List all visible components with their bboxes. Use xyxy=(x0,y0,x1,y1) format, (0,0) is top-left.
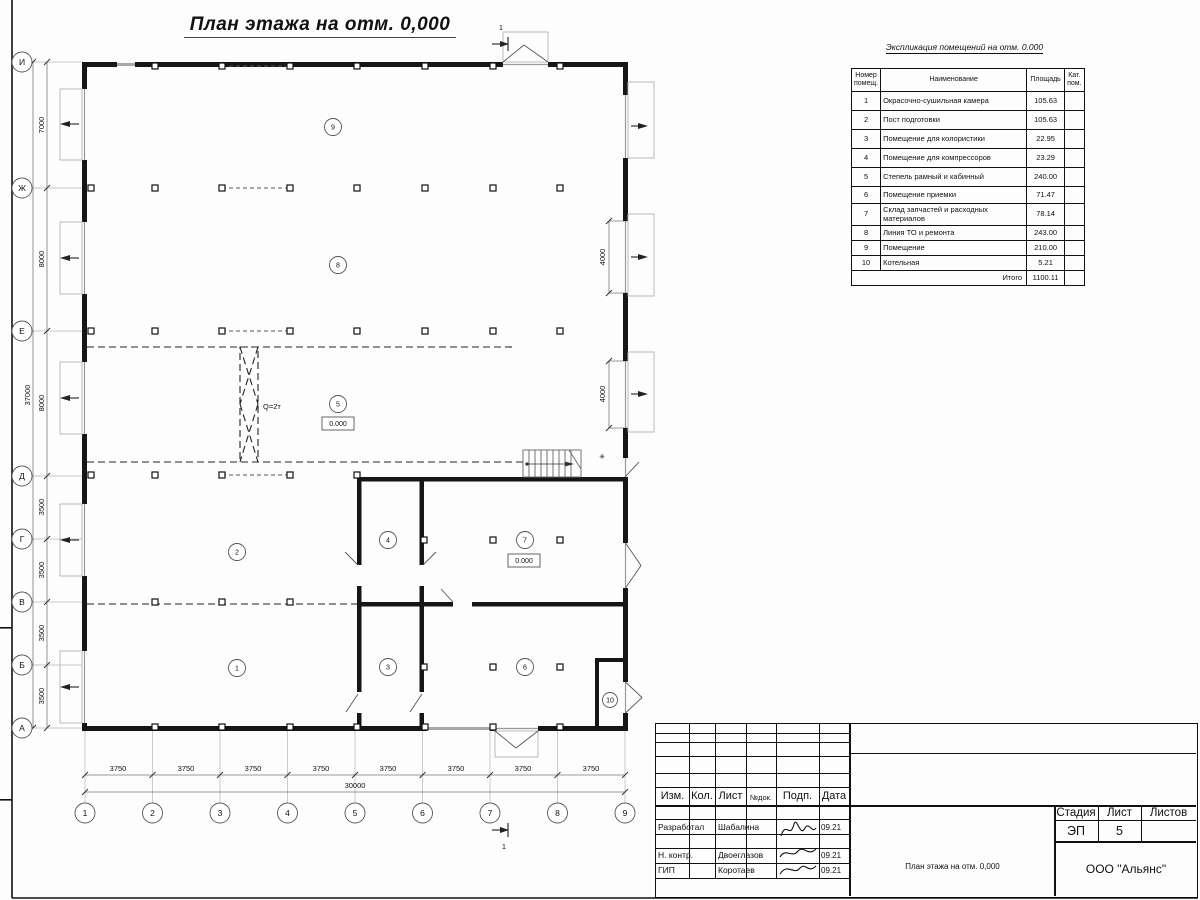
col-header-number: Номерпомещ. xyxy=(852,69,881,92)
tb-col-kol: Кол. xyxy=(689,790,715,802)
tb-name: Шабалина xyxy=(718,822,776,832)
explication-header-row: Номерпомещ. Наименование Площадь Кат.пом… xyxy=(852,69,1085,92)
room-name: Помещение приемки xyxy=(881,187,1027,204)
section-mark-label: 1 xyxy=(502,842,506,851)
table-row: 10Котельная5.21 xyxy=(852,256,1085,271)
room-number: 9 xyxy=(331,125,335,132)
total-value: 1100.11 xyxy=(1027,271,1065,286)
axis-bubbles: И Ж Е Д Г В Б А 1 2 3 4 5 6 7 8 9 xyxy=(12,52,635,823)
room-number: 5 xyxy=(336,402,340,409)
axis-label: В xyxy=(19,597,25,607)
room-cat xyxy=(1065,111,1084,130)
table-row: 6Помещение приемки71.47 xyxy=(852,187,1085,204)
signature-icon xyxy=(778,816,818,844)
room-area: 105.63 xyxy=(1027,111,1065,130)
table-row: 7Склад запчастей и расходных материалов7… xyxy=(852,204,1085,226)
tb-sheet-value: 5 xyxy=(1098,824,1141,838)
level-mark-value: 0.000 xyxy=(515,558,533,565)
dim-label: 8000 xyxy=(37,395,46,412)
tb-doc-title: План этажа на отм. 0,000 xyxy=(851,862,1054,871)
room-cat xyxy=(1065,204,1084,226)
tb-role: Разработал xyxy=(658,822,715,832)
axis-label: 7 xyxy=(488,808,493,818)
dim-label: 3750 xyxy=(245,764,262,773)
axis-label: 9 xyxy=(623,808,628,818)
tb-stage-label: Стадия xyxy=(1054,807,1098,819)
room-name: Склад запчастей и расходных материалов xyxy=(881,204,1027,226)
room-area: 243.00 xyxy=(1027,226,1065,241)
room-cat xyxy=(1065,226,1084,241)
axis-label: Б xyxy=(19,660,25,670)
room-area: 23.29 xyxy=(1027,149,1065,168)
level-marks: 0.000 0.000 Q=2т xyxy=(263,402,540,567)
signature-icon xyxy=(778,860,818,878)
room-area: 210.00 xyxy=(1027,241,1065,256)
table-row: 9Помещение210.00 xyxy=(852,241,1085,256)
dim-label: 3750 xyxy=(313,764,330,773)
tb-col-data: Дата xyxy=(819,790,849,802)
room-area: 5.21 xyxy=(1027,256,1065,271)
tb-company: ООО "Альянс" xyxy=(1056,862,1196,876)
axis-label: Ж xyxy=(18,183,26,193)
dim-label: 3750 xyxy=(583,764,600,773)
room-area: 240.00 xyxy=(1027,168,1065,187)
tb-sheet-label: Лист xyxy=(1098,807,1141,819)
room-number: 7 xyxy=(523,538,527,545)
axis-label: 5 xyxy=(353,808,358,818)
room-num: 4 xyxy=(852,149,881,168)
axis-label: Е xyxy=(19,326,25,336)
interior-walls xyxy=(357,477,628,726)
columns xyxy=(88,63,563,730)
axis-label: 6 xyxy=(420,808,425,818)
tb-sheets-label: Листов xyxy=(1141,807,1196,819)
dim-label: 3750 xyxy=(178,764,195,773)
room-name: Степель рамный и кабинный xyxy=(881,168,1027,187)
tb-col-list: Лист xyxy=(715,790,746,802)
room-name: Пост подготовки xyxy=(881,111,1027,130)
explication-table: Номерпомещ. Наименование Площадь Кат.пом… xyxy=(851,68,1085,286)
axis-label: И xyxy=(19,57,25,67)
tb-role: Н. контр. xyxy=(658,850,715,860)
axis-label: 1 xyxy=(83,808,88,818)
dim-label: 3750 xyxy=(448,764,465,773)
room-cat xyxy=(1065,92,1084,111)
room-num: 7 xyxy=(852,204,881,226)
dim-label: 8000 xyxy=(37,251,46,268)
room-name: Помещение xyxy=(881,241,1027,256)
crane-capacity-label: Q=2т xyxy=(263,402,281,411)
room-cat xyxy=(1065,241,1084,256)
room-num: 1 xyxy=(852,92,881,111)
total-label: Итого xyxy=(852,271,1027,286)
axis-label: А xyxy=(19,723,25,733)
axis-label: 8 xyxy=(555,808,560,818)
room-cat xyxy=(1065,149,1084,168)
drawing-sheet: 7000 8000 8000 3500 3500 3500 3500 37000… xyxy=(0,0,1200,900)
tb-name: Коротаев xyxy=(718,865,776,875)
dim-label: 3500 xyxy=(37,562,46,579)
tb-col-podp: Подп. xyxy=(776,790,819,802)
signature-icon xyxy=(778,845,818,861)
plan-title-text: План этажа на отм. 0,000 xyxy=(184,14,457,38)
room-cat xyxy=(1065,130,1084,149)
room-area: 71.47 xyxy=(1027,187,1065,204)
level-mark-value: 0.000 xyxy=(329,421,347,428)
dim-total-label: 30000 xyxy=(345,781,366,790)
axis-lines xyxy=(32,62,625,803)
dim-label: 3500 xyxy=(37,688,46,705)
axis-label: Д xyxy=(19,471,25,481)
explication-title: Экспликация помещений на отм. 0.000 xyxy=(851,42,1078,52)
staircase: ✳ xyxy=(523,450,605,477)
room-area: 105.63 xyxy=(1027,92,1065,111)
total-cat-cell xyxy=(1065,271,1084,286)
room-number: 6 xyxy=(523,665,527,672)
room-name: Линия ТО и ремонта xyxy=(881,226,1027,241)
axis-label: 3 xyxy=(218,808,223,818)
tb-col-izm: Изм. xyxy=(656,790,689,802)
room-num: 10 xyxy=(852,256,881,271)
room-cat xyxy=(1065,187,1084,204)
axis-label: 2 xyxy=(150,808,155,818)
axis-label: Г xyxy=(20,534,25,544)
stair-asterisk-mark: ✳ xyxy=(599,453,605,461)
room-number: 1 xyxy=(235,666,239,673)
room-number: 10 xyxy=(606,698,614,705)
room-name: Котельная xyxy=(881,256,1027,271)
outer-walls xyxy=(82,62,628,731)
tb-role: ГИП xyxy=(658,865,715,875)
dim-label: 3500 xyxy=(37,499,46,516)
title-block: Изм. Кол. Лист №док. Подп. Дата Разработ… xyxy=(655,723,1198,898)
dim-total-label: 37000 xyxy=(23,385,32,406)
room-cat xyxy=(1065,256,1084,271)
table-row: 4Помещение для компрессоров23.29 xyxy=(852,149,1085,168)
room-area: 22.95 xyxy=(1027,130,1065,149)
table-row: 8Линия ТО и ремонта243.00 xyxy=(852,226,1085,241)
dimension-labels: 7000 8000 8000 3500 3500 3500 3500 37000… xyxy=(23,117,607,790)
room-area: 78.14 xyxy=(1027,204,1065,226)
room-name: Помещение для колористики xyxy=(881,130,1027,149)
zone-boundaries xyxy=(87,66,523,604)
plan-title: План этажа на отм. 0,000 xyxy=(160,14,480,36)
dim-label: 3750 xyxy=(515,764,532,773)
room-num: 5 xyxy=(852,168,881,187)
dim-label: 3750 xyxy=(380,764,397,773)
room-num: 9 xyxy=(852,241,881,256)
col-header-area: Площадь xyxy=(1027,69,1065,92)
explication-total-row: Итого 1100.11 xyxy=(852,271,1085,286)
axis-label: 4 xyxy=(285,808,290,818)
tb-col-ndok: №док. xyxy=(746,793,776,802)
room-num: 6 xyxy=(852,187,881,204)
dim-label: 4000 xyxy=(598,386,607,403)
dim-label: 4000 xyxy=(598,249,607,266)
table-row: 5Степель рамный и кабинный240.00 xyxy=(852,168,1085,187)
crane-symbol xyxy=(240,347,258,462)
room-number: 4 xyxy=(386,538,390,545)
col-header-name: Наименование xyxy=(881,69,1027,92)
room-num: 2 xyxy=(852,111,881,130)
room-num: 8 xyxy=(852,226,881,241)
col-header-category: Кат.пом. xyxy=(1065,69,1084,92)
dim-label: 3500 xyxy=(37,625,46,642)
room-num: 3 xyxy=(852,130,881,149)
room-number: 3 xyxy=(386,665,390,672)
section-mark-label: 1 xyxy=(499,23,503,32)
room-number: 8 xyxy=(336,263,340,270)
table-row: 2Пост подготовки105.63 xyxy=(852,111,1085,130)
tb-name: Двоеглазов xyxy=(718,850,776,860)
dim-label: 7000 xyxy=(37,117,46,134)
tb-stage-value: ЭП xyxy=(1054,824,1098,838)
room-name: Окрасочно-сушильная камера xyxy=(881,92,1027,111)
room-cat xyxy=(1065,168,1084,187)
table-row: 3Помещение для колористики22.95 xyxy=(852,130,1085,149)
tb-date: 09.21 xyxy=(821,851,849,860)
dim-label: 3750 xyxy=(110,764,127,773)
room-number: 2 xyxy=(235,550,239,557)
room-name: Помещение для компрессоров xyxy=(881,149,1027,168)
tb-date: 09.21 xyxy=(821,866,849,875)
table-row: 1Окрасочно-сушильная камера105.63 xyxy=(852,92,1085,111)
tb-date: 09.21 xyxy=(821,823,849,832)
